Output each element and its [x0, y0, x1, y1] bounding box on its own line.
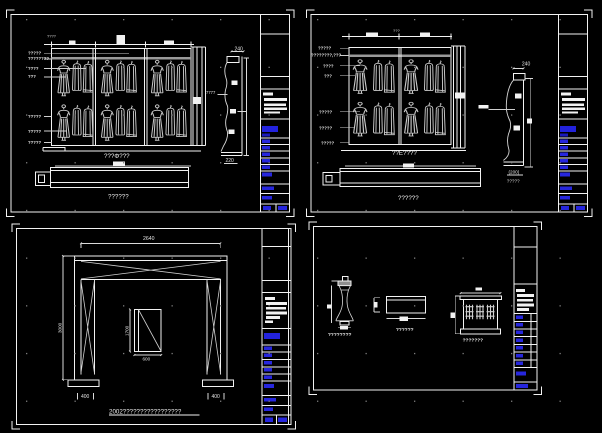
svg-text:????: ????: [28, 66, 39, 71]
svg-text:240: 240: [522, 62, 531, 68]
svg-text:?????: ?????: [319, 125, 332, 130]
svg-text:??????: ??????: [396, 327, 414, 333]
svg-text:?????: ?????: [28, 114, 41, 119]
svg-text:?????: ?????: [28, 129, 41, 134]
svg-text:???????: ???????: [463, 338, 484, 344]
svg-text:1700: 1700: [125, 325, 130, 336]
svg-text:2002?????????????????: 2002?????????????????: [109, 409, 182, 416]
svg-text:???: ???: [393, 28, 400, 33]
svg-text:400: 400: [81, 394, 90, 400]
svg-text:400: 400: [212, 394, 221, 400]
svg-text:??????: ??????: [108, 194, 129, 201]
svg-text:???Φ???: ???Φ???: [104, 153, 130, 160]
svg-text:????????: ????????: [28, 56, 49, 61]
svg-text:????????,???: ????????,???: [311, 53, 341, 58]
svg-text:7777: 7777: [206, 90, 216, 95]
svg-text:???: ???: [324, 73, 332, 78]
svg-text:?????: ?????: [318, 46, 331, 51]
svg-text:????????: ????????: [328, 332, 352, 338]
svg-text:??????: ??????: [398, 195, 419, 202]
svg-text:??Ε????: ??Ε????: [392, 150, 417, 157]
svg-text:???: ???: [28, 74, 36, 79]
svg-text:????: ????: [323, 63, 334, 68]
svg-text:?????: ?????: [28, 140, 41, 145]
svg-text:?????: ?????: [507, 179, 520, 184]
svg-text:?????: ?????: [321, 140, 334, 145]
svg-text:?????: ?????: [28, 51, 41, 56]
svg-text:600: 600: [143, 357, 151, 362]
svg-text:3000: 3000: [58, 322, 63, 333]
svg-text:2640: 2640: [143, 236, 155, 242]
svg-text:????: ????: [47, 34, 57, 39]
svg-text:(200): (200): [509, 170, 520, 175]
svg-text:?????: ?????: [319, 109, 332, 114]
